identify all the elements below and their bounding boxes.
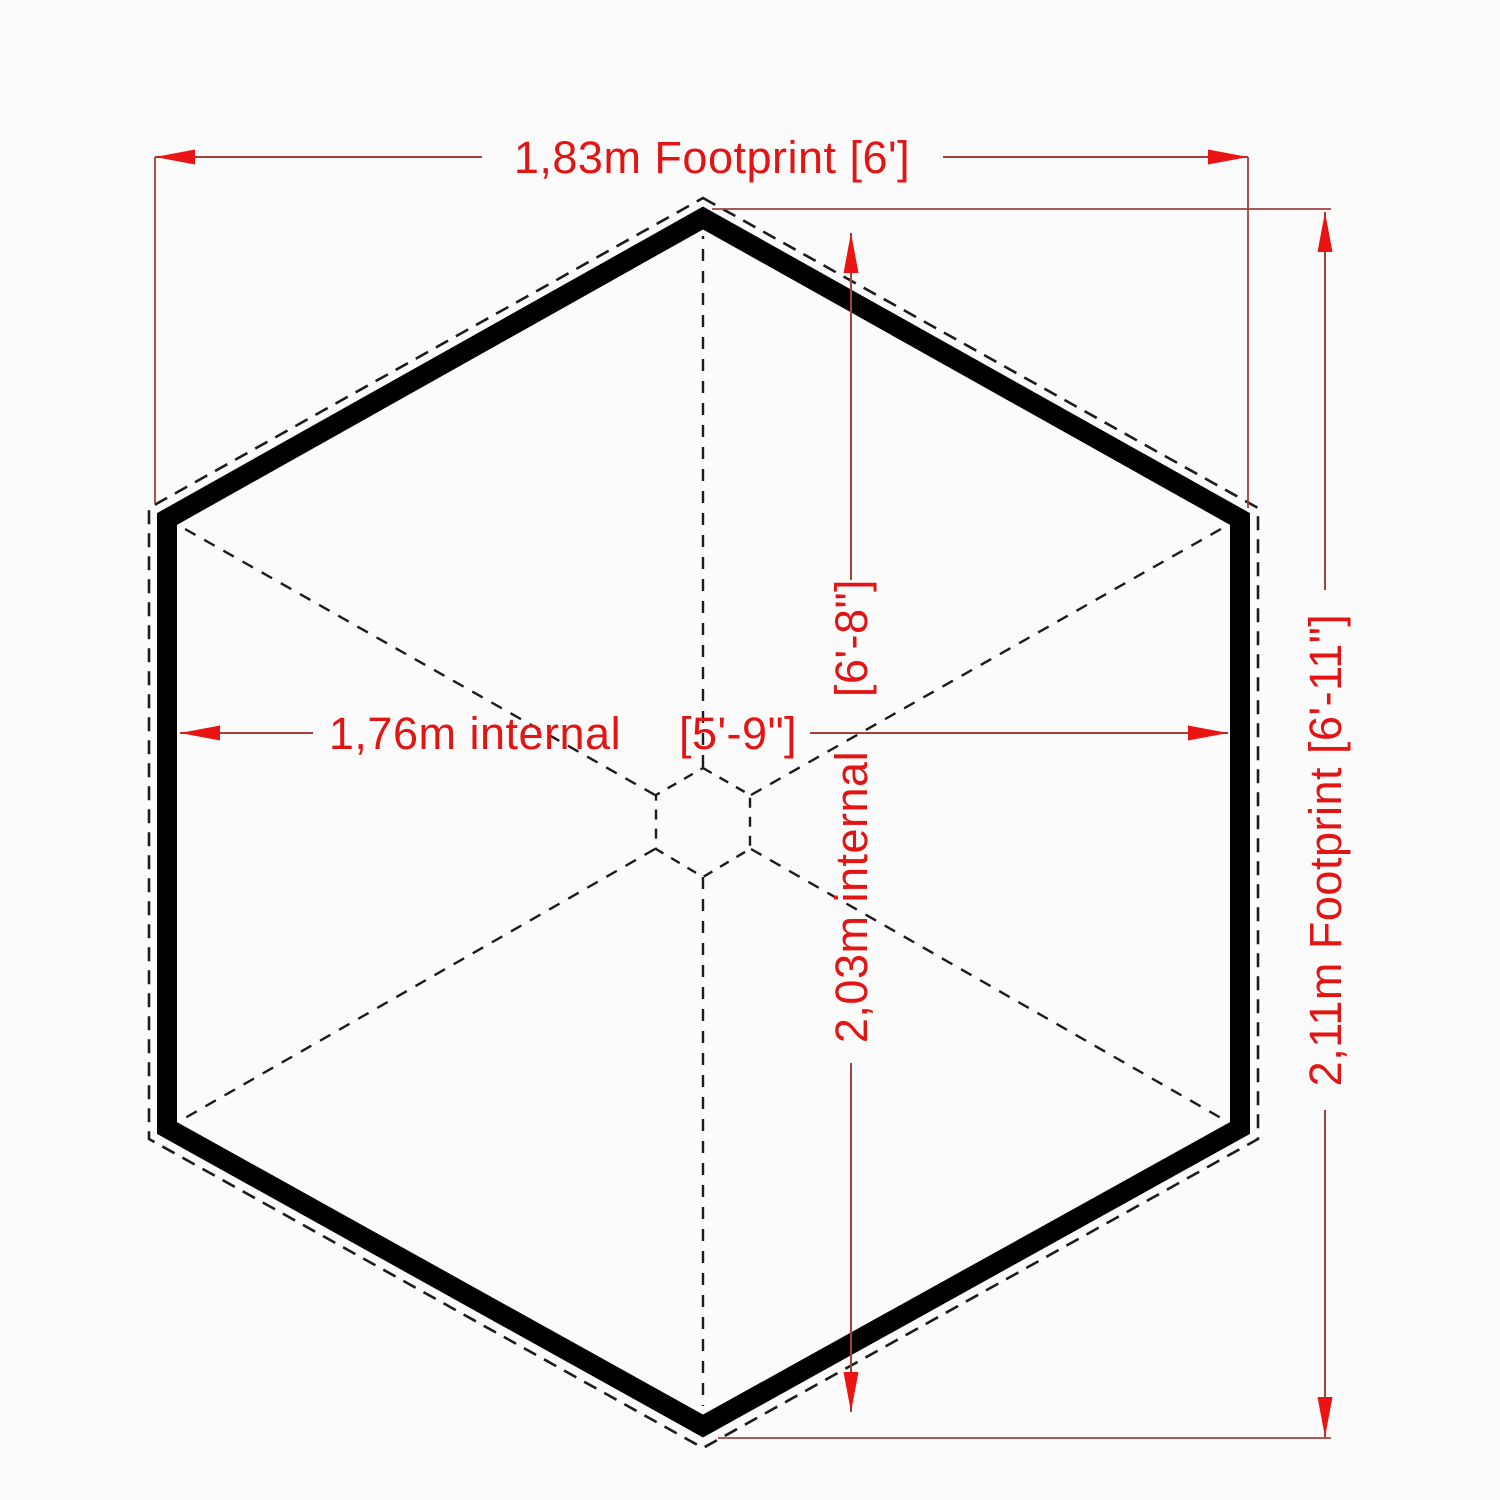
plan-canvas: 1,83m Footprint [6'] 2,11m Footprint [6'… [0, 0, 1500, 1500]
arrow-internal-height-up [844, 233, 859, 273]
arrow-internal-width-right [1188, 726, 1228, 741]
arrow-top-right [1208, 150, 1248, 165]
internal-height-metric-label: 2,03m internal [826, 751, 877, 1043]
internal-width-metric-label: 1,76m internal [329, 708, 621, 759]
wall-outline [167, 218, 1240, 1426]
footprint-height-label: 2,11m Footprint [6'-11"] [1300, 614, 1351, 1087]
internal-height-imperial-label: [6'-8"] [826, 579, 877, 697]
arrow-internal-width-left [180, 726, 220, 741]
dimension-labels: 1,83m Footprint [6'] 2,11m Footprint [6'… [329, 132, 1351, 1086]
arrow-right-up [1318, 212, 1333, 252]
radial-line-lower-left [178, 849, 655, 1122]
hexagon-plan-drawing: 1,83m Footprint [6'] 2,11m Footprint [6'… [0, 0, 1500, 1500]
footprint-width-label: 1,83m Footprint [6'] [514, 132, 910, 183]
arrow-internal-height-down [844, 1372, 859, 1412]
radial-line-upper-right [751, 525, 1228, 795]
center-hub-hexagon [656, 768, 750, 877]
dimension-arrowheads [155, 150, 1333, 1438]
internal-width-imperial-label: [5'-9"] [679, 708, 797, 759]
arrow-right-down [1318, 1397, 1333, 1437]
dimension-lines [155, 157, 1325, 1437]
extension-lines [155, 157, 1331, 1438]
arrow-top-left [155, 150, 195, 165]
radial-line-lower-right [751, 849, 1228, 1122]
